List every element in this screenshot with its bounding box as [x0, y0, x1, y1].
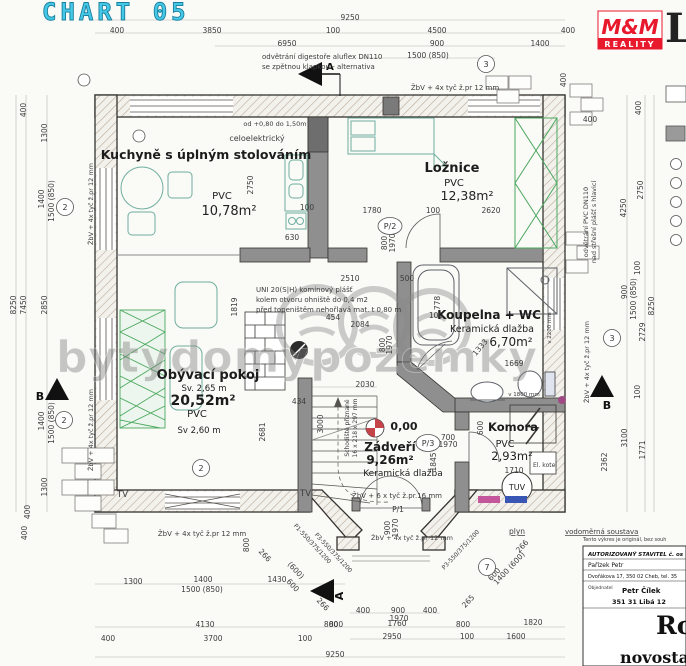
hall-name: Zádveří — [364, 440, 416, 454]
dimension-label: 2084 — [350, 320, 369, 329]
titleblock-address: Dvořákova 17, 350 02 Cheb, tel. 35 — [588, 573, 677, 580]
floorplan-page: bytydomypozemky Kuchyně s úplným stolová… — [0, 0, 686, 666]
dimension-label: 1820 — [523, 618, 542, 627]
dimension-label: 2362 — [600, 452, 609, 471]
dimension-label: 100 — [326, 26, 341, 35]
titleblock-client-label: Objednatel — [588, 585, 613, 591]
dimension-label: 1780 — [362, 206, 381, 215]
dimension-label: 100 — [298, 634, 313, 643]
circle-marker — [133, 130, 145, 142]
legend-swatch-gray — [666, 126, 685, 141]
page-title: CHART 05 — [42, 0, 190, 26]
dimension-label: 1970 — [388, 233, 397, 252]
dimension-label: 900 — [620, 285, 629, 300]
armchair — [175, 282, 217, 328]
dimension-label: 1500 (850) — [407, 51, 449, 60]
dimension-label: 2750 — [246, 175, 255, 194]
dimension-label: 2950 — [382, 632, 401, 641]
dimension-label: 800 — [456, 620, 471, 629]
dimension-label: 1400 — [37, 411, 46, 430]
legend-circle — [671, 197, 682, 208]
annotation-label: nad střešní plášť s hlavicí — [589, 181, 598, 264]
annotation-label: vodoměrná soustava — [565, 528, 638, 536]
svg-text:3: 3 — [483, 60, 488, 69]
bedroom-door — [406, 214, 440, 248]
dimension-label: 1500 (850) — [47, 180, 56, 222]
section-arrow-b-right: B — [590, 375, 614, 412]
annotation-label: TV — [299, 489, 311, 499]
storage-marker-blue — [505, 496, 527, 503]
dimension-label: 1970 — [438, 440, 457, 449]
dimension-label: 100 — [429, 311, 444, 320]
dimension-label: 9250 — [340, 13, 359, 22]
svg-text:2: 2 — [198, 464, 203, 473]
dimension-label: 1300 — [40, 123, 49, 142]
dimension-label: 400 — [634, 101, 643, 116]
annotation-label: ŽbV + 4x tyč ž.pr 12 mm — [371, 533, 453, 542]
circle-marker: 2 — [193, 460, 210, 477]
dimension-label: 2510 — [340, 274, 359, 283]
storage-area: 2,93m² — [491, 449, 532, 463]
dimension-label: 1845 — [429, 452, 438, 471]
dimension-label: 454 — [326, 313, 341, 322]
dimension-label: 4250 — [619, 198, 628, 217]
dimension-label: 1400 — [530, 39, 549, 48]
exterior-walls — [95, 95, 565, 550]
living-area: 20,52m² — [170, 393, 235, 409]
dimension-label: 400 — [559, 73, 568, 88]
section-arrow-a-bottom: A — [310, 579, 346, 603]
dimension-label: 8250 — [9, 295, 18, 314]
circle-marker: P/2 — [378, 218, 402, 235]
dimension-label: 100 — [633, 385, 642, 400]
watermark-text: bytydomypozemky — [56, 332, 538, 383]
floorplan-drawing: bytydomypozemky Kuchyně s úplným stolová… — [0, 0, 686, 666]
svg-text:B: B — [603, 399, 611, 412]
mm-logo-text: M&M — [601, 15, 658, 39]
dimension-label: 4130 — [195, 620, 214, 629]
svg-text:2: 2 — [61, 416, 66, 425]
annotation-label: Schodiště přiznané — [344, 399, 351, 457]
annotation-label: kolem otvoru ohniště do 0,4 m2 — [256, 296, 368, 304]
titleblock-client: Petr Čílek — [622, 586, 661, 595]
annotation-label: ŽbV + 4x tyč ž.pr 12 mm — [411, 83, 500, 92]
legend-circle — [671, 216, 682, 227]
dimension-label: 1500 (850) — [181, 585, 223, 594]
annotation-label: ŽbV + 4x tyč ž.pr 12 mm — [158, 529, 247, 538]
circle-marker — [78, 74, 90, 86]
annotation-label: Tento výkres je originál, bez souh — [582, 536, 666, 543]
dimension-label: 1771 — [638, 440, 647, 459]
dimension-label: 100 — [426, 206, 441, 215]
title-block: AUTORIZOVANÝ STAVITEL č. os Pařízek Petr… — [583, 546, 686, 666]
kitchen-table — [121, 167, 192, 235]
annotation-label: se zpětnou klapkou - alternativa — [262, 63, 375, 71]
legend-circle — [671, 235, 682, 246]
kitchen-area: 10,78m² — [201, 204, 256, 219]
dimension-label: 1400 — [193, 575, 212, 584]
dimension-label: 400 — [101, 634, 116, 643]
circle-marker: 2 — [57, 199, 74, 216]
dimension-label: 400 — [356, 606, 371, 615]
dimension-label: 2850 — [40, 295, 49, 314]
dimension-label: 1300 — [40, 477, 49, 496]
wall-marker-dot — [558, 396, 566, 404]
dimension-label: 100 — [300, 203, 315, 212]
circle-marker: 3 — [478, 56, 495, 73]
annotation-label: před topeništěm nehořlavá mat. t 0,80 m — [256, 306, 401, 314]
annotation-label: v 1800 mm — [508, 392, 539, 398]
hall-area: 9,26m² — [366, 453, 413, 467]
annotation-label: od +0,80 do 1,50m — [243, 120, 306, 128]
annotation-label: ŽbV + 4x tyč ž.pr 12 mm — [582, 321, 591, 403]
dimension-label: 2030 — [355, 380, 374, 389]
dimension-label: 1500 (850) — [629, 278, 638, 320]
annotation-label: odvětrání PVC DN110 — [582, 187, 590, 257]
dimension-label: 1819 — [230, 297, 239, 316]
bathroom-area: 6,70m² — [489, 335, 532, 349]
annotation-label: ŽbV + 4x tyč ž.pr 12 mm — [86, 163, 95, 245]
kitchen-left-window — [97, 168, 116, 250]
water-heater-label: TUV — [508, 483, 526, 492]
bedroom-area: 12,38m² — [441, 188, 494, 203]
dimension-label: 3000 — [316, 414, 325, 433]
svg-text:3: 3 — [609, 334, 614, 343]
storage-name: Komora — [488, 420, 538, 434]
dimension-label: 800 — [329, 620, 344, 629]
dimension-label: 2620 — [481, 206, 500, 215]
dimension-label: 400 — [561, 26, 576, 35]
annotation-label: TV — [116, 490, 128, 500]
dimension-label: 3850 — [202, 26, 221, 35]
annotation-label: ŽbV + 6 x tyč ž.pr.16 mm — [352, 491, 442, 500]
circle-marker: 7 — [479, 559, 496, 576]
annotation-label: celoelektrický — [229, 134, 285, 143]
svg-text:P/3: P/3 — [422, 439, 435, 448]
dimension-label: 600 — [476, 421, 485, 436]
mm-reality-logo: M&M REALITY — [598, 11, 662, 49]
elevation-marker — [366, 419, 384, 437]
bedroom-name: Ložnice — [424, 161, 479, 176]
dimension-label: 2750 — [636, 180, 645, 199]
annotation-label: UNI 20(S|H) komínový plášť — [256, 285, 353, 294]
annotation-label: v 2200 mm — [547, 312, 553, 343]
dimension-label: 4500 — [427, 26, 446, 35]
dimension-label: 778 — [433, 296, 442, 311]
dimension-label: 1500 (850) — [47, 402, 56, 444]
titleblock-header: AUTORIZOVANÝ STAVITEL č. os — [587, 551, 684, 558]
hall-elevation: 0,00 — [390, 420, 417, 433]
bathroom-floor: Keramická dlažba — [450, 324, 534, 335]
annotation-label: El. kotel — [533, 462, 557, 469]
dimension-label: 6950 — [277, 39, 296, 48]
living-name: Obývací pokoj — [157, 368, 260, 383]
living-bottom-window — [165, 492, 240, 511]
dimension-label: 400 — [110, 26, 125, 35]
legend-swatch-empty — [666, 86, 686, 102]
dimension-label: 1710 — [504, 466, 523, 475]
dimension-label: 1400 — [37, 189, 46, 208]
storage-marker-pink — [478, 496, 500, 503]
dimension-label: 3100 — [620, 428, 629, 447]
dimension-label: 7450 — [19, 295, 28, 314]
dimension-label: 2681 — [258, 422, 267, 441]
dimension-label: 900 — [430, 39, 445, 48]
kitchen-top-window — [130, 97, 233, 116]
bed — [348, 118, 446, 166]
annotation-label: 16 x 218 x 297 mm — [352, 398, 359, 457]
reality-logo-text: REALITY — [604, 40, 655, 49]
dimension-label: (600) — [286, 560, 306, 581]
dimension-label: 1300 — [123, 577, 142, 586]
titleblock-client-addr: 351 31 Libá 12 — [612, 598, 666, 606]
dimension-label: 500 — [400, 274, 415, 283]
annotation-label: ŽbV + 4x tyč ž.pr 12 mm — [86, 389, 95, 471]
titleblock-big-text: Ro — [656, 611, 686, 640]
circle-marker: 2 — [56, 412, 73, 429]
dimension-label: 800 — [242, 538, 251, 553]
porch-steps — [352, 556, 430, 561]
dimension-label: 3700 — [203, 634, 222, 643]
kitchen-name: Kuchyně s úplným stolováním — [101, 147, 312, 162]
dimension-label: 8250 — [647, 296, 656, 315]
bathroom-name: Koupelna + WC — [437, 308, 541, 322]
svg-text:B: B — [36, 390, 44, 403]
dimension-label: 400 — [20, 526, 29, 541]
dimension-label: 434 — [292, 397, 307, 406]
dimension-label: 630 — [285, 233, 300, 242]
dimension-label: 9250 — [325, 650, 344, 659]
dimension-label: 2729 — [638, 322, 647, 341]
dimension-label: 100 — [460, 632, 475, 641]
titleblock-name: Pařízek Petr — [588, 562, 624, 569]
legend-circle — [671, 178, 682, 189]
dimension-label: 1430 — [267, 575, 286, 584]
svg-text:7: 7 — [484, 563, 489, 572]
circle-marker: 3 — [604, 330, 621, 347]
titleblock-bottom-text: novostavb — [620, 648, 686, 666]
kitchen-counter — [285, 155, 307, 229]
dimension-label: P/1 — [392, 505, 404, 514]
page-header: CHART 05 M&M REALITY L — [42, 0, 686, 52]
annotation-label: odvětrání digestoře aluflex DN110 — [262, 53, 382, 61]
dimension-label: 100 — [633, 261, 642, 276]
legend-circle — [671, 159, 682, 170]
dimension-label: 400 — [423, 606, 438, 615]
dimension-label: 266 — [514, 538, 531, 555]
kitchen-floor: PVC — [212, 191, 232, 202]
dimension-label: 400 — [19, 103, 28, 118]
dimension-label: 1600 — [506, 632, 525, 641]
svg-text:2: 2 — [62, 203, 67, 212]
circle-marker: P/3 — [416, 435, 440, 452]
legend-column — [666, 86, 686, 246]
dimension-label: 1669 — [504, 359, 523, 368]
dimension-label: 265 — [460, 593, 477, 610]
living-height-b: Sv 2,60 m — [177, 426, 220, 436]
dimension-label: 400 — [583, 115, 598, 124]
svg-text:A: A — [333, 591, 346, 600]
svg-text:P/2: P/2 — [384, 222, 397, 231]
corner-letter: L — [665, 5, 686, 52]
living-floor: PVC — [187, 409, 207, 420]
dimension-label: 400 — [23, 505, 32, 520]
dimension-label: 1970 — [385, 335, 394, 354]
dimension-label: 266 — [257, 547, 274, 564]
dimension-label: 1760 — [387, 619, 406, 628]
annotation-label: plyn — [509, 527, 525, 536]
